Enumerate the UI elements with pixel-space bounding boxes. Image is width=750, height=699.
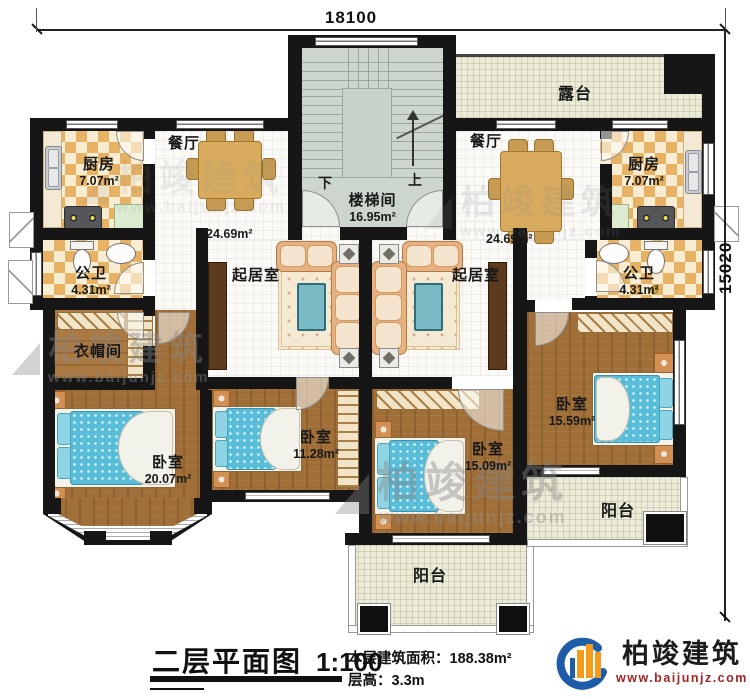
sofa-cushion (375, 266, 402, 293)
pillow (377, 477, 390, 509)
nightstand (375, 421, 392, 438)
stair-up-label: 上 (408, 170, 422, 190)
corridor-left-floor (155, 227, 196, 310)
wall (288, 227, 302, 240)
room-label-bath-right: 公卫 4.31m² (608, 266, 670, 297)
wall (572, 298, 715, 310)
sofa-cushion (280, 245, 306, 267)
room-label-kitchen-right: 厨房 7.07m² (610, 157, 678, 188)
title-block: 二层平面图 1:100 本层建筑面积：188.38m² 层高：3.3m 柏竣建筑… (0, 636, 750, 699)
company-url: www.baijunjz.com (616, 672, 748, 685)
bay-corner (43, 498, 61, 514)
coffee-table-left (297, 283, 326, 331)
room-label-bedroom-e: 卧室 15.59m² (532, 397, 612, 428)
floor-height-value: 3.3m (392, 673, 425, 689)
chair (560, 178, 574, 200)
wall (208, 377, 296, 389)
extension-line (36, 8, 37, 32)
plant-stand (339, 244, 359, 264)
sofa-cushion (433, 245, 459, 267)
wall (143, 131, 155, 139)
title-underline (150, 676, 342, 682)
wall (143, 310, 155, 316)
dimension-line-top (36, 29, 726, 31)
plan-info: 本层建筑面积：188.38m² 层高：3.3m (348, 648, 512, 693)
room-name: 公卫 (623, 266, 655, 283)
plant-stand (379, 348, 399, 368)
stair-door-gap-left (302, 227, 340, 240)
room-area: 4.31m² (71, 283, 111, 297)
room-area: 4.31m² (619, 283, 659, 297)
stair-treads-right (392, 88, 443, 178)
pillow (215, 411, 228, 438)
room-area: 16.95m² (349, 210, 396, 224)
room-label-living-left: 起居室 (228, 268, 284, 285)
stair-door-gap-right (407, 227, 443, 240)
watermark-logo-icon (12, 343, 40, 375)
sofa-cushion (375, 294, 402, 321)
room-label-bedroom-se: 卧室 15.09m² (448, 442, 528, 473)
room-area: 20.07m² (145, 472, 192, 486)
floor-area-value: 188.38m² (450, 651, 512, 667)
nightstand (654, 444, 674, 464)
room-name: 餐厅 (470, 134, 502, 151)
bedroom4-wardrobe (577, 313, 673, 333)
room-label-bedroom-s: 卧室 11.28m² (276, 430, 356, 461)
room-area-dining-left: 24.69m² (206, 227, 253, 241)
sofa-cushion (375, 322, 402, 349)
wall (43, 378, 155, 390)
wall (513, 228, 527, 545)
chair (262, 158, 276, 180)
pillow (659, 410, 673, 440)
room-name: 厨房 (83, 157, 115, 174)
balcony-column (497, 604, 529, 634)
bay-corner (150, 531, 172, 545)
room-name: 衣帽间 (74, 344, 122, 361)
room-label-dining-right: 餐厅 (462, 134, 510, 151)
window (392, 535, 490, 543)
room-area: 7.07m² (79, 174, 119, 188)
stair-arrow-line (412, 118, 414, 166)
window (612, 120, 668, 129)
room-area: 15.59m² (549, 414, 596, 428)
room-name: 阳台 (601, 503, 635, 521)
room-label-bath-left: 公卫 4.31m² (60, 266, 122, 297)
stair-down-label: 下 (318, 173, 332, 193)
plan-title: 二层平面图 (152, 640, 302, 680)
room-name: 卧室 (556, 397, 588, 414)
room-label-kitchen-left: 厨房 7.07m² (65, 157, 133, 188)
wall (443, 35, 456, 240)
company-name: 柏竣建筑 (622, 641, 742, 668)
wall (340, 227, 407, 240)
wall (30, 298, 155, 310)
room-label-living-right: 起居室 (448, 268, 504, 285)
wall (443, 118, 715, 131)
tv-cabinet-left (208, 262, 227, 370)
floor-area-row: 本层建筑面积：188.38m² (348, 648, 512, 670)
nightstand (654, 353, 674, 373)
basin-left (106, 243, 136, 264)
wall (30, 228, 155, 240)
room-label-balcony-right: 阳台 (588, 503, 648, 521)
pillow (377, 443, 390, 475)
room-area: 15.09m² (465, 459, 512, 473)
stair-treads-run (348, 47, 392, 89)
window (543, 467, 600, 475)
room-label-bedroom-sw: 卧室 20.07m² (128, 455, 208, 486)
room-area-dining-right: 24.69m² (486, 232, 533, 246)
flower-box (714, 206, 739, 242)
sofa-cushion (406, 245, 432, 267)
room-name: 卧室 (300, 430, 332, 447)
stair-treads-left (301, 88, 342, 178)
dimension-width: 18100 (305, 8, 397, 28)
floor-plan-canvas: 柏竣建筑 www.baijunjz.com 柏竣建筑 www.baijunjz.… (0, 0, 750, 699)
sofa-cushion (335, 294, 362, 321)
room-name: 起居室 (232, 268, 280, 285)
sofa-cushion (335, 266, 362, 293)
room-name: 露台 (558, 86, 592, 104)
window (674, 340, 685, 425)
pillow (57, 413, 71, 445)
wall (585, 240, 597, 258)
room-name: 阳台 (413, 568, 447, 586)
room-name: 餐厅 (168, 136, 200, 153)
cloakroom-rack (57, 312, 125, 330)
window (176, 120, 264, 129)
floor-height-label: 层高： (348, 673, 392, 689)
kitchen-right-sink (685, 150, 702, 194)
wall (196, 228, 208, 390)
pillow (57, 447, 71, 479)
nightstand (375, 513, 392, 530)
plant-stand (379, 244, 399, 264)
window (245, 492, 330, 500)
wall (513, 300, 535, 312)
bay-floor (51, 498, 204, 526)
room-name: 楼梯间 (348, 193, 396, 210)
balcony-mid-rail-left (348, 545, 356, 631)
company-logo-icon (556, 636, 608, 690)
window (315, 37, 418, 46)
kitchen-left-board (114, 204, 144, 229)
plant-stand (339, 348, 359, 368)
floor-area-label: 本层建筑面积： (348, 651, 450, 667)
flower-box (9, 212, 34, 248)
wall (443, 227, 456, 240)
room-name: 卧室 (152, 455, 184, 472)
bay-window (43, 498, 212, 545)
dimension-height: 15020 (716, 242, 736, 294)
stair-landing (342, 88, 392, 178)
bay-corner (84, 531, 106, 545)
kitchen-right-stove (637, 206, 675, 230)
room-area: 11.28m² (293, 447, 339, 461)
kitchen-left-stove (64, 206, 102, 230)
wall (329, 377, 360, 389)
window (703, 250, 714, 294)
window (496, 120, 556, 129)
room-label-cloakroom: 衣帽间 (58, 344, 138, 361)
flower-box (8, 260, 33, 304)
coffee-table-right (414, 283, 443, 331)
room-name: 公卫 (75, 266, 107, 283)
bay-corner (194, 498, 212, 514)
floor-height-row: 层高：3.3m (348, 670, 512, 692)
pillow (659, 378, 673, 408)
pillow (215, 440, 228, 467)
window (66, 120, 118, 129)
dining-table-right (500, 151, 562, 232)
room-label-terrace: 露台 (545, 86, 605, 104)
stair-arrow-head (407, 110, 419, 120)
room-name: 起居室 (452, 268, 500, 285)
wall (43, 310, 55, 502)
company-logo: 柏竣建筑 www.baijunjz.com (556, 636, 748, 690)
title-underline-2 (150, 688, 204, 690)
room-label-stairwell: 楼梯间 16.95m² (330, 193, 415, 224)
balcony-column (644, 512, 686, 544)
wall (143, 240, 155, 260)
dimension-line-right (724, 29, 726, 621)
wall (600, 228, 715, 240)
room-area: 7.07m² (624, 174, 664, 188)
balcony-column (358, 604, 390, 634)
nightstand (213, 471, 230, 488)
window (703, 143, 714, 195)
wall (359, 240, 372, 545)
sofa-cushion (335, 322, 362, 349)
room-name: 厨房 (628, 157, 660, 174)
sofa-cushion (307, 245, 333, 267)
kitchen-left-sink (45, 146, 62, 190)
room-name: 卧室 (472, 442, 504, 459)
nightstand (213, 390, 230, 407)
wall (372, 377, 452, 389)
room-label-dining-left: 餐厅 (160, 136, 208, 153)
wall (288, 35, 302, 240)
room-label-balcony-mid: 阳台 (400, 568, 460, 586)
